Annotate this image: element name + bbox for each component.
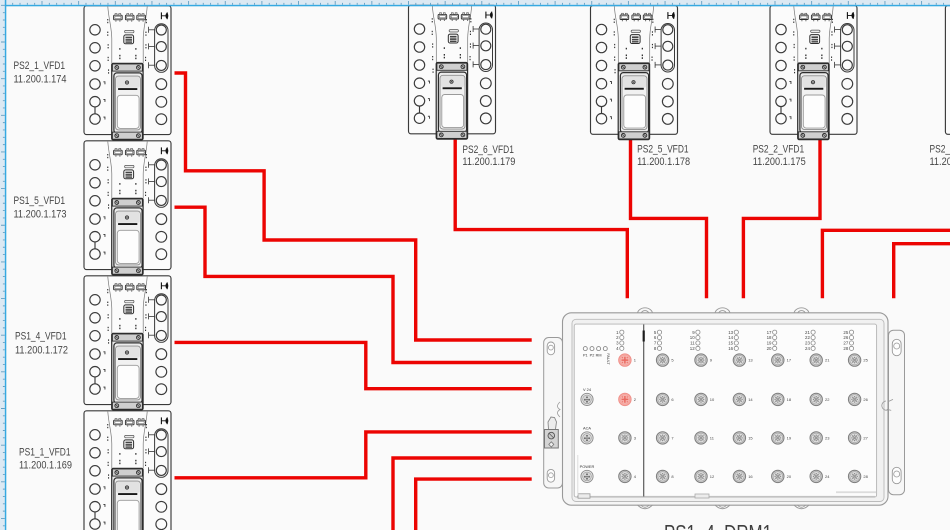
svg-text:17: 17: [787, 358, 792, 363]
svg-text:11.200.1.178: 11.200.1.178: [637, 156, 690, 168]
svg-text:26: 26: [863, 397, 868, 402]
svg-text:10: 10: [690, 335, 695, 340]
svg-text:11.200.1.179: 11.200.1.179: [462, 156, 515, 168]
svg-text:19: 19: [767, 341, 772, 346]
svg-text:24: 24: [805, 346, 810, 351]
svg-text:PS1_5_VFD1: PS1_5_VFD1: [14, 195, 66, 207]
svg-text:14: 14: [728, 335, 733, 340]
svg-text:12: 12: [690, 346, 695, 351]
svg-text:11.200.1.175: 11.200.1.175: [753, 156, 806, 168]
svg-text:18: 18: [767, 335, 772, 340]
svg-text:11.200.1.174: 11.200.1.174: [14, 74, 67, 86]
svg-text:PS1_1_VFD1: PS1_1_VFD1: [19, 446, 71, 458]
svg-text:28: 28: [863, 474, 868, 479]
svg-text:13: 13: [748, 358, 753, 363]
svg-text:13: 13: [728, 330, 733, 335]
svg-text:28: 28: [843, 346, 848, 351]
svg-text:22: 22: [805, 335, 810, 340]
svg-text:PS2_2_VFD1: PS2_2_VFD1: [753, 144, 805, 156]
svg-text:PS2_3_VFD1: PS2_3_VFD1: [930, 144, 950, 156]
svg-text:12: 12: [710, 474, 715, 479]
svg-text:POWER: POWER: [580, 464, 595, 469]
svg-text:20: 20: [787, 474, 792, 479]
svg-text:11: 11: [690, 341, 695, 346]
svg-text:23: 23: [825, 435, 830, 440]
svg-text:20: 20: [767, 346, 772, 351]
svg-text:11.200.1.173: 11.200.1.173: [14, 209, 67, 221]
svg-text:24: 24: [825, 474, 830, 479]
svg-text:PS2_1_VFD1: PS2_1_VFD1: [14, 60, 66, 72]
svg-text:10: 10: [710, 397, 715, 402]
svg-text:27: 27: [843, 341, 848, 346]
svg-text:22: 22: [825, 397, 830, 402]
svg-text:18: 18: [787, 397, 792, 402]
svg-text:PS2_5_VFD1: PS2_5_VFD1: [637, 143, 689, 155]
svg-text:23: 23: [805, 341, 810, 346]
svg-text:11.200.1.169: 11.200.1.169: [19, 459, 72, 471]
svg-text:19: 19: [787, 435, 792, 440]
svg-text:27: 27: [863, 435, 868, 440]
svg-text:PS1_4_DRM1: PS1_4_DRM1: [664, 521, 772, 530]
svg-text:ACA: ACA: [583, 426, 591, 431]
svg-text:25: 25: [863, 358, 868, 363]
svg-text:17: 17: [767, 330, 772, 335]
svg-text:25: 25: [843, 330, 848, 335]
svg-text:26: 26: [843, 335, 848, 340]
svg-text:15: 15: [748, 435, 753, 440]
svg-text:21: 21: [825, 358, 830, 363]
svg-text:11.200.1.176: 11.200.1.176: [930, 156, 950, 168]
svg-text:16: 16: [748, 474, 753, 479]
svg-text:PS2_6_VFD1: PS2_6_VFD1: [462, 144, 514, 156]
svg-text:21: 21: [805, 330, 810, 335]
svg-text:FAULT: FAULT: [606, 353, 610, 365]
svg-text:PS1_4_VFD1: PS1_4_VFD1: [15, 331, 67, 343]
svg-text:16: 16: [728, 346, 733, 351]
svg-text:11.200.1.172: 11.200.1.172: [15, 344, 68, 356]
svg-text:V 24: V 24: [583, 387, 592, 392]
svg-text:14: 14: [748, 397, 753, 402]
svg-text:15: 15: [728, 341, 733, 346]
svg-text:RM: RM: [596, 354, 602, 358]
svg-text:P1: P1: [583, 354, 588, 358]
svg-text:P2: P2: [590, 354, 595, 358]
